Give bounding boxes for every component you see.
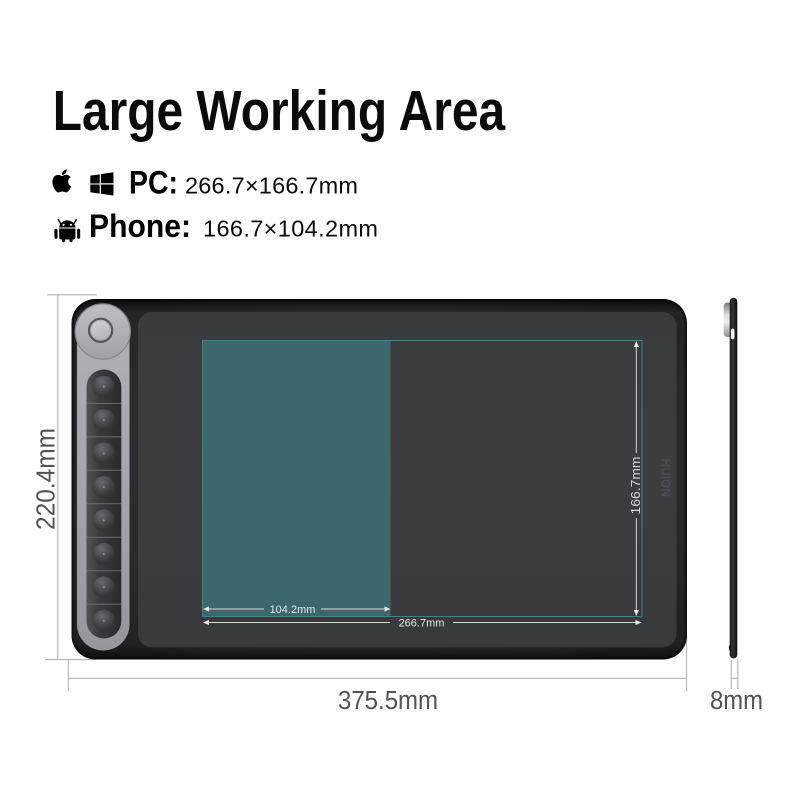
svg-text:166.7mm: 166.7mm bbox=[629, 457, 643, 515]
svg-text:8mm: 8mm bbox=[710, 687, 763, 715]
svg-text:166.7×104.2mm: 166.7×104.2mm bbox=[203, 216, 378, 242]
svg-text:266.7mm: 266.7mm bbox=[399, 617, 445, 629]
svg-text:104.2mm: 104.2mm bbox=[270, 604, 316, 616]
svg-text:HUION: HUION bbox=[659, 458, 673, 497]
svg-text:Phone:: Phone: bbox=[89, 208, 191, 244]
svg-text:375.5mm: 375.5mm bbox=[338, 687, 438, 715]
svg-text:220.4mm: 220.4mm bbox=[33, 428, 61, 530]
svg-text:PC:: PC: bbox=[129, 165, 178, 201]
svg-text:266.7×166.7mm: 266.7×166.7mm bbox=[185, 172, 358, 198]
svg-text:Large Working Area: Large Working Area bbox=[53, 79, 507, 143]
